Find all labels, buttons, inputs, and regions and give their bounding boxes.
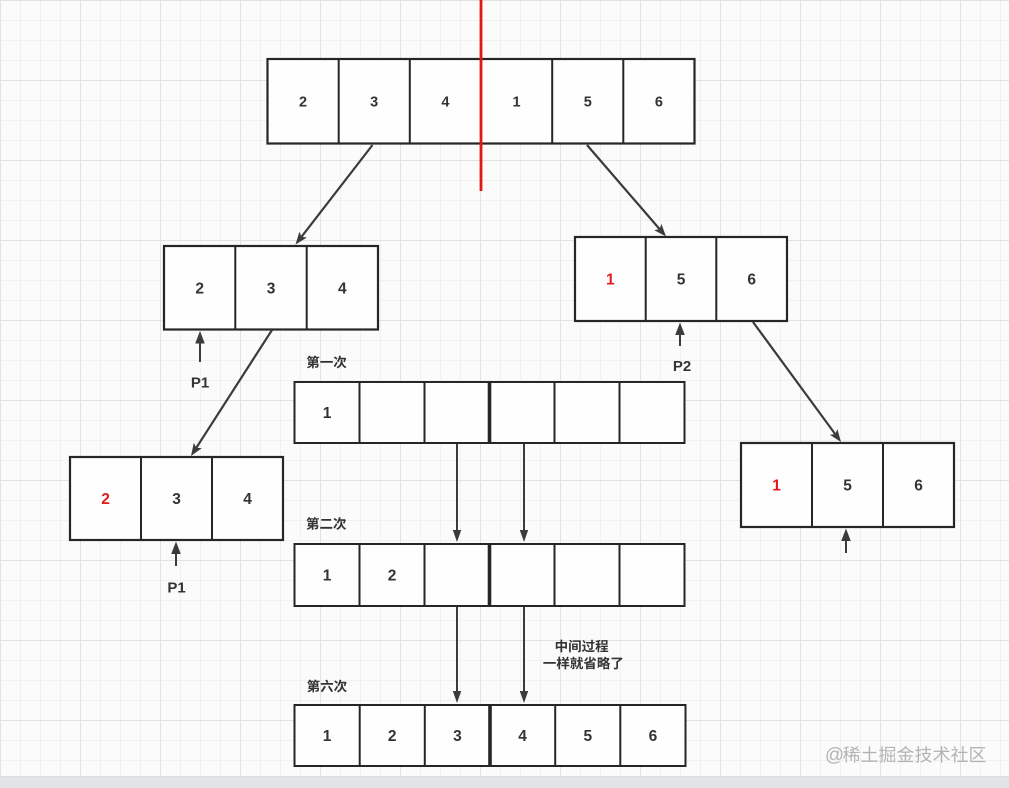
svg-text:3: 3 xyxy=(172,491,181,508)
svg-text:2: 2 xyxy=(101,491,110,508)
svg-text:P1: P1 xyxy=(167,579,185,596)
svg-text:5: 5 xyxy=(583,728,592,745)
svg-text:P1: P1 xyxy=(191,374,209,391)
svg-text:2: 2 xyxy=(299,95,307,111)
svg-text:5: 5 xyxy=(584,95,592,111)
svg-text:4: 4 xyxy=(441,95,449,111)
svg-text:P2: P2 xyxy=(673,358,691,375)
svg-text:6: 6 xyxy=(914,478,923,495)
svg-text:1: 1 xyxy=(606,272,615,289)
svg-text:5: 5 xyxy=(843,478,852,495)
svg-text:1: 1 xyxy=(772,478,781,495)
svg-text:6: 6 xyxy=(747,272,756,289)
svg-text:1: 1 xyxy=(513,95,521,111)
svg-text:6: 6 xyxy=(655,95,663,111)
svg-text:2: 2 xyxy=(388,568,397,585)
svg-text:4: 4 xyxy=(518,728,527,745)
svg-text:3: 3 xyxy=(453,728,462,745)
svg-text:3: 3 xyxy=(267,280,276,297)
svg-text:1: 1 xyxy=(323,405,332,422)
svg-text:@: @ xyxy=(825,745,844,766)
svg-text:4: 4 xyxy=(243,491,252,508)
svg-text:2: 2 xyxy=(388,728,397,745)
svg-text:2: 2 xyxy=(195,280,204,297)
svg-text:1: 1 xyxy=(323,728,332,745)
svg-text:1: 1 xyxy=(323,568,332,585)
svg-text:6: 6 xyxy=(649,728,658,745)
svg-text:5: 5 xyxy=(677,272,686,289)
svg-text:4: 4 xyxy=(338,280,347,297)
svg-text:3: 3 xyxy=(370,95,378,111)
